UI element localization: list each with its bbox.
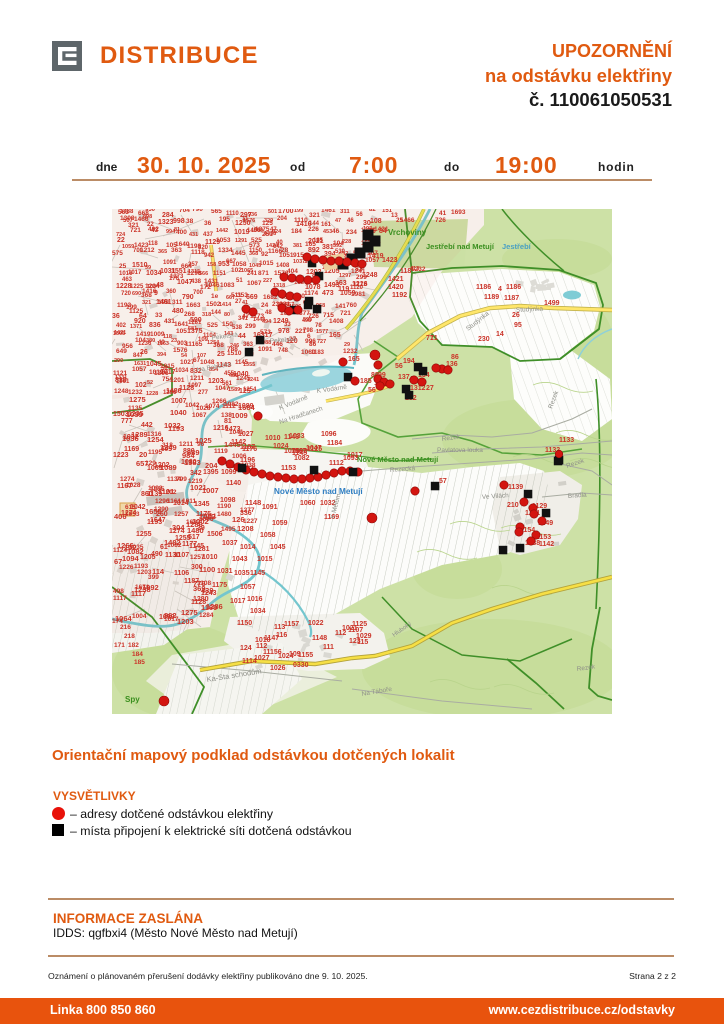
svg-text:1040: 1040 [170,408,187,417]
svg-text:1112: 1112 [329,460,344,467]
svg-text:47: 47 [335,218,341,224]
svg-text:1091: 1091 [262,504,278,511]
svg-text:363: 363 [171,247,182,254]
svg-text:498: 498 [113,588,124,595]
svg-text:1671: 1671 [135,584,150,591]
svg-text:1021: 1021 [190,483,207,492]
svg-text:1089: 1089 [238,403,254,410]
svg-text:56: 56 [368,387,376,394]
svg-text:1192: 1192 [392,292,407,299]
svg-text:1177: 1177 [182,541,197,548]
svg-text:1275: 1275 [129,395,146,404]
svg-text:667: 667 [226,259,237,265]
svg-text:1130: 1130 [165,552,180,559]
svg-text:1235: 1235 [128,411,144,418]
svg-text:27: 27 [426,385,434,392]
svg-text:2021: 2021 [308,238,324,245]
svg-text:413: 413 [410,266,419,272]
svg-text:1373: 1373 [170,274,184,280]
svg-text:1057: 1057 [132,366,147,373]
svg-text:862: 862 [164,611,177,620]
svg-text:1202: 1202 [162,489,177,496]
svg-text:690: 690 [132,291,141,297]
svg-text:453: 453 [323,229,332,235]
svg-text:903: 903 [177,341,188,347]
svg-text:1254: 1254 [243,387,257,393]
svg-text:1110: 1110 [294,217,308,224]
svg-text:318: 318 [162,442,173,449]
svg-text:1148: 1148 [245,498,261,507]
svg-text:1193: 1193 [134,563,148,570]
svg-text:1355: 1355 [243,362,255,368]
svg-text:1306: 1306 [154,370,169,377]
svg-text:1133: 1133 [559,437,574,444]
svg-text:1017: 1017 [128,270,142,276]
svg-text:46: 46 [347,218,354,224]
svg-text:1461: 1461 [321,209,336,214]
svg-text:25: 25 [217,351,225,358]
svg-text:57: 57 [439,478,447,485]
svg-text:748: 748 [278,348,289,354]
svg-text:394: 394 [157,352,167,358]
svg-text:124: 124 [240,645,252,652]
svg-text:1119: 1119 [214,448,228,455]
svg-text:36: 36 [204,220,212,227]
svg-text:172: 172 [200,284,211,291]
svg-text:563: 563 [118,209,129,216]
svg-text:11: 11 [242,216,249,222]
svg-text:105: 105 [176,328,187,335]
svg-text:1011: 1011 [182,498,196,505]
svg-text:1074: 1074 [205,403,220,410]
svg-text:1232: 1232 [343,348,358,355]
svg-text:300: 300 [191,564,203,571]
svg-text:1499: 1499 [544,300,560,307]
svg-text:1190: 1190 [217,503,231,510]
svg-text:1015: 1015 [259,260,274,267]
svg-text:56: 56 [395,363,403,370]
svg-text:81: 81 [174,227,180,233]
svg-text:1323: 1323 [158,219,174,226]
svg-text:463: 463 [122,277,133,283]
svg-text:1091: 1091 [163,260,177,266]
svg-text:1981: 1981 [351,291,366,298]
svg-text:1203: 1203 [137,569,152,576]
svg-text:363: 363 [243,342,254,348]
svg-text:1069: 1069 [147,465,163,472]
svg-text:39: 39 [197,525,205,532]
svg-text:1655: 1655 [145,507,162,516]
svg-text:538: 538 [232,325,243,331]
svg-text:199: 199 [158,299,169,306]
svg-text:Nové Město nad Metují: Nové Město nad Metují [274,487,363,496]
svg-text:480: 480 [172,308,184,315]
svg-text:43: 43 [151,227,159,234]
svg-text:1223: 1223 [113,452,129,459]
svg-text:1423: 1423 [382,257,398,264]
svg-text:402: 402 [116,323,127,329]
svg-text:48: 48 [265,310,272,316]
svg-text:1099: 1099 [221,469,237,476]
svg-text:1026: 1026 [270,665,286,672]
svg-text:1421: 1421 [388,276,404,283]
svg-text:299: 299 [356,274,367,281]
svg-text:1198: 1198 [292,448,307,455]
svg-text:Pavlatova louka: Pavlatova louka [437,447,483,454]
svg-text:46: 46 [332,228,340,235]
svg-text:86: 86 [309,341,317,348]
svg-text:1241: 1241 [247,377,259,383]
svg-text:437: 437 [203,232,214,238]
svg-text:1408: 1408 [329,318,344,325]
svg-text:311: 311 [172,299,183,306]
svg-text:1495: 1495 [221,526,236,533]
svg-text:721: 721 [340,310,351,317]
svg-text:115: 115 [357,639,368,646]
svg-text:25: 25 [119,263,127,270]
svg-text:113: 113 [274,624,285,631]
svg-text:1189: 1189 [484,294,499,301]
svg-text:1448: 1448 [253,317,265,323]
svg-text:565: 565 [211,209,222,215]
svg-text:82: 82 [369,209,376,213]
svg-text:1414: 1414 [219,302,232,308]
svg-text:228: 228 [342,239,351,245]
svg-text:984: 984 [182,451,195,460]
svg-text:1445: 1445 [231,250,246,257]
svg-text:365: 365 [158,249,167,255]
svg-text:158: 158 [207,262,216,268]
svg-text:1010: 1010 [202,554,218,561]
svg-text:1183: 1183 [311,350,325,356]
svg-text:195: 195 [219,216,230,223]
svg-text:1236: 1236 [138,341,152,347]
svg-text:1257: 1257 [174,511,189,518]
svg-text:1431: 1431 [204,278,219,285]
svg-text:1004: 1004 [132,613,147,620]
svg-text:342: 342 [190,470,202,477]
svg-text:1034: 1034 [175,368,189,374]
svg-text:165: 165 [348,356,360,363]
svg-text:1010: 1010 [255,637,271,644]
svg-text:1187: 1187 [504,295,519,302]
svg-text:1174: 1174 [304,290,318,297]
svg-text:1297: 1297 [339,273,351,279]
svg-text:657: 657 [136,459,149,468]
svg-text:299: 299 [245,323,256,330]
svg-text:1045: 1045 [270,544,286,551]
svg-text:1042: 1042 [130,504,146,511]
svg-text:998: 998 [173,218,185,225]
svg-text:22: 22 [117,237,125,244]
svg-text:642: 642 [273,244,284,250]
svg-text:353: 353 [237,292,248,299]
svg-text:36: 36 [112,313,120,320]
svg-text:1128: 1128 [191,599,206,606]
svg-text:20: 20 [139,450,147,459]
svg-text:942: 942 [204,253,215,259]
svg-text:1175: 1175 [212,582,227,589]
svg-text:593: 593 [303,317,312,323]
svg-text:51: 51 [236,278,243,284]
svg-text:4: 4 [498,286,502,293]
svg-text:33: 33 [155,312,163,319]
svg-text:915: 915 [293,252,304,259]
svg-text:141: 141 [335,303,346,310]
svg-text:1700: 1700 [278,209,294,215]
svg-text:1663: 1663 [186,302,201,309]
svg-text:1043: 1043 [232,556,248,563]
svg-text:1438: 1438 [264,231,276,237]
svg-text:125: 125 [262,220,273,227]
svg-text:1032: 1032 [123,434,139,441]
svg-text:182: 182 [128,642,139,649]
svg-text:381: 381 [293,243,302,249]
svg-text:1083: 1083 [220,282,235,289]
svg-text:210: 210 [507,502,519,509]
svg-text:1053: 1053 [216,237,231,244]
svg-text:1015: 1015 [257,556,273,563]
svg-text:Bradla: Bradla [568,492,588,500]
svg-text:1420: 1420 [388,284,404,291]
svg-text:1187: 1187 [240,444,255,451]
svg-text:1205: 1205 [140,554,156,561]
svg-text:95: 95 [514,322,522,329]
svg-text:573: 573 [260,329,271,336]
svg-text:Nové Město nad Metují: Nové Město nad Metují [357,455,439,464]
svg-text:1097: 1097 [188,383,202,389]
svg-text:790: 790 [192,209,203,213]
svg-text:368: 368 [213,342,224,349]
svg-text:320: 320 [198,245,209,251]
svg-text:277: 277 [198,390,209,396]
svg-text:1021: 1021 [342,625,358,632]
svg-text:721: 721 [130,227,141,234]
svg-text:1034: 1034 [250,608,266,615]
svg-text:1059: 1059 [122,244,134,250]
svg-text:485: 485 [229,373,238,379]
svg-text:Spy: Spy [125,695,140,704]
svg-text:41: 41 [439,210,447,217]
svg-text:1014: 1014 [240,544,256,551]
svg-text:1106: 1106 [174,570,189,577]
svg-text:1466: 1466 [134,216,149,223]
svg-text:1096: 1096 [321,431,337,438]
svg-text:1274: 1274 [120,476,135,483]
svg-text:442: 442 [141,422,153,429]
svg-text:704: 704 [179,209,190,214]
svg-text:1157: 1157 [284,621,299,628]
svg-text:1016: 1016 [247,596,263,603]
svg-text:1029: 1029 [356,633,372,640]
svg-text:1163: 1163 [157,341,169,347]
svg-text:109: 109 [289,651,301,658]
svg-text:473: 473 [322,290,334,297]
svg-text:381: 381 [322,244,334,251]
svg-text:1195: 1195 [148,449,162,456]
svg-text:1146: 1146 [284,434,299,441]
svg-text:726: 726 [435,217,446,224]
svg-text:1096: 1096 [199,516,214,523]
svg-text:1212: 1212 [140,247,155,254]
svg-text:360: 360 [166,289,177,295]
svg-text:52: 52 [147,380,153,386]
svg-text:184: 184 [132,651,143,658]
svg-text:111: 111 [323,644,334,651]
svg-text:1284: 1284 [199,612,214,619]
svg-text:1091: 1091 [258,346,273,353]
svg-text:1227: 1227 [243,518,258,525]
svg-text:80: 80 [224,312,230,318]
svg-text:760: 760 [346,302,357,309]
svg-text:114: 114 [152,567,165,576]
svg-text:836: 836 [149,322,161,329]
svg-text:71: 71 [430,335,438,342]
svg-text:1577: 1577 [316,329,328,335]
svg-text:102: 102 [135,382,147,389]
svg-text:1208: 1208 [237,524,254,533]
svg-text:1007: 1007 [171,398,187,405]
svg-text:1017: 1017 [230,598,246,605]
svg-text:1057: 1057 [240,584,256,591]
svg-text:1216: 1216 [213,425,229,432]
svg-text:525: 525 [207,322,218,329]
svg-text:25: 25 [396,217,404,224]
svg-text:144: 144 [211,310,222,316]
svg-text:1067: 1067 [247,280,262,287]
svg-text:501: 501 [268,209,277,215]
svg-text:1022: 1022 [308,620,324,627]
svg-text:1059: 1059 [272,520,288,527]
svg-text:1145: 1145 [250,570,265,577]
svg-text:1153: 1153 [281,465,296,472]
svg-text:1035: 1035 [234,570,250,577]
svg-text:1316: 1316 [147,431,162,438]
svg-text:1505: 1505 [113,331,125,337]
svg-text:1275: 1275 [181,608,198,617]
svg-text:1277: 1277 [240,507,255,514]
svg-text:978: 978 [278,328,290,335]
svg-text:216: 216 [120,624,131,631]
svg-text:1211: 1211 [179,441,193,448]
svg-text:1184: 1184 [327,440,342,447]
svg-text:1140: 1140 [226,480,241,487]
svg-text:194: 194 [403,358,415,365]
svg-text:119: 119 [338,286,349,293]
svg-text:1442: 1442 [216,228,228,234]
svg-text:431: 431 [189,232,198,238]
svg-text:1201: 1201 [170,377,185,384]
svg-text:321: 321 [142,300,151,306]
svg-text:1058: 1058 [260,532,276,539]
svg-text:100: 100 [147,284,156,290]
svg-text:171: 171 [114,642,125,649]
svg-text:525: 525 [251,237,262,244]
svg-text:Jestřebí: Jestřebí [502,242,532,251]
svg-text:1031: 1031 [217,568,233,575]
svg-text:257: 257 [188,262,199,268]
svg-text:798: 798 [303,328,314,334]
svg-text:1151: 1151 [213,271,227,277]
svg-text:368: 368 [249,251,258,257]
svg-text:174: 174 [112,618,123,625]
svg-text:1082: 1082 [294,455,310,462]
svg-text:777: 777 [121,418,133,425]
svg-text:26: 26 [140,349,148,356]
svg-text:241: 241 [247,271,258,277]
svg-text:1186: 1186 [506,284,521,291]
svg-text:507: 507 [123,218,134,224]
svg-text:1187: 1187 [184,578,199,585]
svg-text:1480: 1480 [217,511,232,518]
svg-text:1e: 1e [211,293,219,300]
svg-text:1196: 1196 [240,457,255,464]
svg-text:892: 892 [308,247,320,254]
svg-text:109: 109 [198,337,209,343]
svg-text:86: 86 [451,354,459,361]
svg-text:304: 304 [172,523,185,532]
svg-text:318: 318 [202,312,211,318]
svg-text:1092: 1092 [148,485,163,492]
svg-text:184: 184 [291,228,302,235]
svg-text:84: 84 [379,228,387,235]
svg-text:44: 44 [238,333,246,340]
svg-text:1010: 1010 [265,435,281,442]
svg-text:1060: 1060 [300,500,316,507]
svg-text:118: 118 [400,268,411,275]
svg-text:1142: 1142 [539,541,554,548]
svg-text:1042: 1042 [185,402,200,409]
svg-text:1125: 1125 [307,446,322,453]
svg-text:48: 48 [156,282,164,289]
svg-text:Vrchoviny: Vrchoviny [388,228,427,237]
svg-text:1117: 1117 [131,591,146,598]
svg-text:1148: 1148 [312,635,327,642]
svg-text:1255: 1255 [136,531,152,538]
svg-text:1150: 1150 [237,620,252,627]
svg-text:1641: 1641 [174,321,189,328]
svg-text:1248: 1248 [114,388,129,395]
svg-text:102: 102 [124,543,137,552]
svg-text:116: 116 [276,632,287,639]
svg-text:290: 290 [114,358,123,364]
svg-text:720: 720 [121,291,132,297]
svg-text:321: 321 [309,212,320,219]
svg-text:67: 67 [114,557,122,566]
svg-text:56: 56 [356,212,363,218]
svg-text:1027: 1027 [238,431,254,438]
svg-text:649: 649 [116,348,127,355]
svg-text:788: 788 [227,346,238,353]
svg-text:81: 81 [224,418,232,425]
svg-text:1186: 1186 [476,284,491,291]
svg-text:1193: 1193 [168,424,184,433]
svg-text:1027: 1027 [254,655,270,662]
svg-text:1203: 1203 [177,617,194,626]
svg-text:1009: 1009 [231,411,248,420]
svg-text:108: 108 [370,218,382,225]
svg-text:38: 38 [186,218,194,225]
svg-text:61: 61 [160,544,168,551]
svg-text:1298: 1298 [187,270,202,277]
svg-text:1647: 1647 [150,517,166,524]
svg-text:165: 165 [329,332,341,339]
svg-text:1371: 1371 [130,324,142,330]
svg-text:226: 226 [308,226,319,233]
svg-text:581: 581 [188,326,197,332]
svg-text:1286: 1286 [206,602,223,611]
svg-text:860: 860 [141,491,153,498]
